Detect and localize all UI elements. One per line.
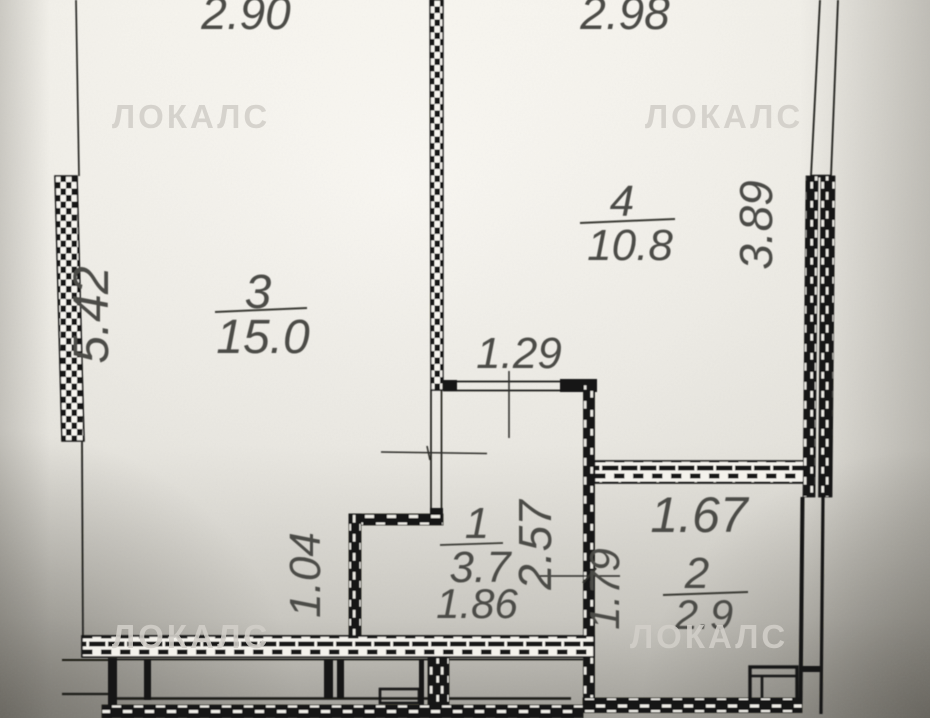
svg-text:2.57: 2.57 [509, 499, 561, 591]
svg-text:1.29: 1.29 [476, 329, 562, 378]
svg-text:1.67: 1.67 [650, 487, 750, 543]
svg-text:1: 1 [465, 499, 489, 548]
svg-text:ЛОКАЛС: ЛОКАЛС [112, 618, 270, 655]
svg-text:1.79: 1.79 [581, 548, 628, 630]
svg-text:5.42: 5.42 [63, 266, 119, 364]
svg-text:4: 4 [610, 177, 634, 226]
svg-text:10.8: 10.8 [587, 221, 673, 270]
svg-text:1.04: 1.04 [281, 532, 330, 618]
svg-text:2.90: 2.90 [200, 0, 291, 39]
svg-text:ЛОКАЛС: ЛОКАЛС [630, 618, 788, 655]
svg-text:15.0: 15.0 [216, 311, 310, 364]
svg-text:3.89: 3.89 [730, 180, 782, 270]
svg-text:2.98: 2.98 [579, 0, 670, 39]
svg-text:1.86: 1.86 [436, 580, 518, 627]
svg-text:ЛОКАЛС: ЛОКАЛС [645, 98, 803, 135]
svg-text:ЛОКАЛС: ЛОКАЛС [112, 98, 270, 135]
